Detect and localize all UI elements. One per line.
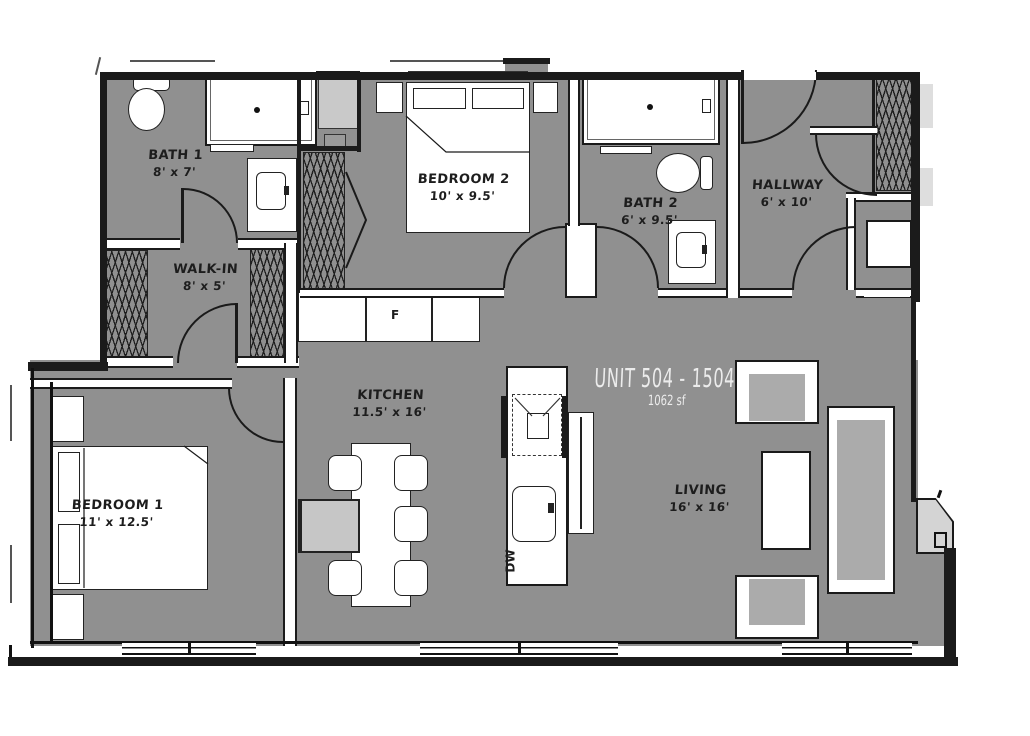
closet-top-jog-wall bbox=[299, 146, 361, 151]
room-name: KITCHEN bbox=[330, 388, 451, 405]
dimension-line bbox=[130, 60, 215, 62]
column-outlet-box bbox=[934, 532, 947, 548]
coat-closet-hatch bbox=[876, 76, 916, 191]
room-name: BATH 1 bbox=[115, 148, 236, 165]
bedroom2-nightstand-right bbox=[533, 82, 558, 113]
dimension-line bbox=[10, 385, 12, 441]
bath1-sink-faucet bbox=[284, 186, 289, 195]
bedroom1-pillow bbox=[58, 524, 80, 584]
wall-top-jog-cap bbox=[503, 58, 550, 64]
room-dims: 6' x 10' bbox=[726, 195, 847, 211]
armchair-cushion bbox=[749, 374, 805, 421]
dining-chair bbox=[394, 560, 428, 596]
kitchen-counter bbox=[298, 292, 480, 342]
bedroom1-step-wall bbox=[28, 362, 108, 371]
window-mullion bbox=[188, 642, 191, 654]
wd-closet-top-wall bbox=[846, 192, 918, 202]
fridge-label: F bbox=[391, 308, 399, 322]
unit-title: UNIT 504 - 1504 bbox=[594, 364, 736, 394]
window-mullion bbox=[518, 642, 521, 654]
room-label-bath1: BATH 1 8' x 7' bbox=[114, 148, 236, 180]
room-dims: 6' x 9.5' bbox=[599, 213, 700, 229]
dining-chair bbox=[394, 455, 428, 491]
range-side-bar bbox=[501, 396, 506, 458]
room-name: BEDROOM 1 bbox=[57, 498, 178, 515]
room-label-walkin: WALK-IN 8' x 5' bbox=[144, 262, 266, 294]
bedroom1-top-wall bbox=[30, 378, 232, 389]
room-name: WALK-IN bbox=[145, 262, 266, 279]
dining-chair bbox=[328, 560, 362, 596]
bath2-tub-faucet bbox=[702, 99, 711, 113]
island-sink bbox=[512, 486, 556, 542]
wall-right-lower bbox=[944, 548, 956, 662]
bath1-tub-faucet bbox=[300, 101, 309, 115]
wd-door-gap bbox=[864, 290, 910, 297]
washer-dryer bbox=[866, 220, 912, 268]
kitchen-counter-divider bbox=[431, 293, 433, 341]
floor-plan: F DW bbox=[0, 0, 1030, 736]
door-stub-wall bbox=[565, 223, 597, 298]
room-dims: 11.5' x 16' bbox=[329, 405, 450, 421]
walkin-closet-hatch-left bbox=[103, 250, 148, 357]
armchair-cushion bbox=[749, 579, 805, 625]
bedroom1-right-wall bbox=[283, 378, 297, 646]
bedroom2-pillow bbox=[472, 88, 524, 109]
bedroom2-closet-hatch bbox=[303, 152, 345, 289]
room-label-bedroom2: BEDROOM 2 10' x 9.5' bbox=[402, 172, 524, 204]
range-burner bbox=[527, 413, 549, 439]
dimension-line bbox=[390, 60, 503, 62]
room-dims: 16' x 16' bbox=[649, 500, 750, 516]
dining-chair bbox=[394, 506, 428, 542]
base-line bbox=[8, 657, 958, 666]
bar-counter-line bbox=[580, 417, 582, 529]
island-sink-faucet bbox=[548, 503, 554, 513]
wall-right-mid bbox=[911, 298, 916, 502]
bath1-tub-drain bbox=[254, 107, 260, 113]
bedroom2-bath2-wall bbox=[568, 76, 580, 226]
room-dims: 8' x 7' bbox=[114, 165, 235, 181]
bedroom2-bottom-wall bbox=[300, 288, 504, 298]
bath2-tub-drain bbox=[647, 104, 653, 110]
room-name: BATH 2 bbox=[600, 196, 701, 213]
room-name: LIVING bbox=[650, 483, 751, 500]
bath1-bedroom2-wall bbox=[357, 76, 361, 152]
bath2-shelf bbox=[600, 146, 652, 154]
utility-panel bbox=[318, 79, 358, 129]
sofa-cushion bbox=[837, 420, 885, 580]
bath2-toilet-tank bbox=[700, 156, 713, 190]
kitchen-counter-divider bbox=[365, 293, 367, 341]
wall-left-upper bbox=[100, 72, 107, 366]
room-label-bedroom1: BEDROOM 1 11' x 12.5' bbox=[56, 498, 178, 530]
unit-area: 1062 sf bbox=[630, 393, 703, 409]
coffee-table bbox=[761, 451, 811, 550]
bedroom2-nightstand-left bbox=[376, 82, 403, 113]
bath2-toilet-bowl bbox=[656, 153, 700, 193]
base-line-stub bbox=[9, 645, 12, 657]
walkin-right-wall bbox=[284, 243, 298, 363]
bath1-walkin-wall bbox=[103, 238, 180, 250]
room-dims: 10' x 9.5' bbox=[402, 189, 523, 205]
bedroom1-nightstand-top bbox=[50, 396, 84, 442]
bedroom1-window-wall bbox=[31, 368, 34, 648]
floor-living-se bbox=[912, 550, 946, 646]
exterior-notch bbox=[920, 168, 933, 206]
dining-chair bbox=[328, 455, 362, 491]
room-label-living: LIVING 16' x 16' bbox=[649, 483, 751, 515]
bath1-toilet-bowl bbox=[128, 88, 165, 131]
bedroom2-pillow bbox=[413, 88, 466, 109]
bath1-sink bbox=[256, 172, 286, 210]
range-side-bar bbox=[562, 396, 567, 458]
room-name: HALLWAY bbox=[727, 178, 848, 195]
room-label-bath2: BATH 2 6' x 9.5' bbox=[599, 196, 701, 228]
bedroom1-nightstand-bottom bbox=[50, 594, 84, 640]
room-dims: 11' x 12.5' bbox=[56, 515, 177, 531]
bedroom1-window-wall-inner bbox=[50, 382, 53, 644]
kitchen-bench bbox=[298, 499, 360, 553]
bath2-sink-faucet bbox=[702, 245, 707, 254]
room-label-kitchen: KITCHEN 11.5' x 16' bbox=[329, 388, 451, 420]
entry-door-leaf bbox=[741, 70, 744, 144]
window-mullion bbox=[846, 642, 849, 654]
walkin-door-leaf bbox=[235, 303, 238, 363]
dimension-line bbox=[10, 545, 12, 603]
exterior-notch bbox=[920, 84, 933, 128]
entry-opening bbox=[744, 72, 816, 80]
bath2-bottom-wall bbox=[658, 288, 792, 298]
walkin-bottom-wall bbox=[103, 356, 173, 368]
room-name: BEDROOM 2 bbox=[403, 172, 524, 189]
wall-right-upper bbox=[911, 72, 920, 302]
room-label-hallway: HALLWAY 6' x 10' bbox=[726, 178, 848, 210]
dishwasher-label: DW bbox=[504, 549, 518, 572]
bath1-door-leaf bbox=[181, 188, 184, 243]
room-dims: 8' x 5' bbox=[144, 279, 265, 295]
column-tick bbox=[937, 490, 943, 499]
